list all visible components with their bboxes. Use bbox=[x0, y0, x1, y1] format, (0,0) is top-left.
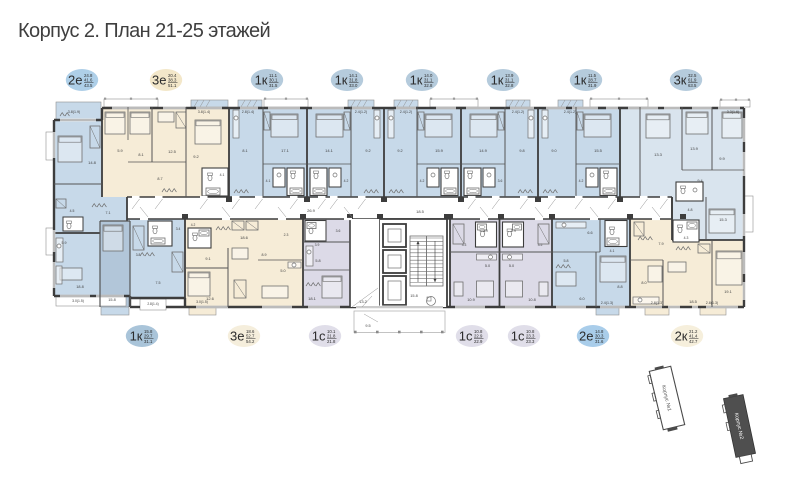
svg-text:63.5: 63.5 bbox=[688, 83, 697, 88]
svg-text:15.5: 15.5 bbox=[594, 148, 603, 153]
svg-text:31.1: 31.1 bbox=[505, 77, 514, 82]
svg-text:52.7: 52.7 bbox=[246, 333, 255, 338]
svg-text:23.3: 23.3 bbox=[526, 333, 535, 338]
svg-text:31.6: 31.6 bbox=[595, 339, 604, 344]
svg-text:4.1: 4.1 bbox=[220, 173, 225, 177]
svg-text:8.1: 8.1 bbox=[138, 153, 143, 157]
svg-text:41.6: 41.6 bbox=[84, 77, 93, 82]
svg-text:9.8: 9.8 bbox=[519, 149, 524, 153]
svg-text:3.6: 3.6 bbox=[336, 229, 341, 233]
svg-text:6.6: 6.6 bbox=[587, 231, 592, 235]
svg-text:2.9: 2.9 bbox=[483, 229, 488, 233]
svg-text:9.2: 9.2 bbox=[193, 154, 199, 159]
svg-text:4.2: 4.2 bbox=[191, 223, 196, 227]
svg-text:3.9: 3.9 bbox=[315, 243, 320, 247]
svg-text:18.5: 18.5 bbox=[689, 299, 698, 304]
svg-text:5.0: 5.0 bbox=[509, 264, 514, 268]
svg-text:5.8: 5.8 bbox=[315, 259, 320, 263]
svg-text:30.3: 30.3 bbox=[595, 333, 604, 338]
svg-text:19.1: 19.1 bbox=[724, 290, 731, 294]
svg-text:61.9: 61.9 bbox=[688, 77, 697, 82]
svg-text:3.8(1.9): 3.8(1.9) bbox=[68, 110, 80, 114]
svg-text:9.2: 9.2 bbox=[365, 149, 370, 153]
svg-text:1к: 1к bbox=[255, 73, 268, 88]
svg-text:21.8: 21.8 bbox=[327, 339, 336, 344]
svg-text:14.9: 14.9 bbox=[479, 148, 488, 153]
svg-text:51.1: 51.1 bbox=[168, 83, 177, 88]
svg-text:8.1: 8.1 bbox=[242, 149, 247, 153]
svg-text:21.8: 21.8 bbox=[327, 333, 336, 338]
svg-text:3.3(1.6): 3.3(1.6) bbox=[727, 110, 739, 114]
svg-text:15.3: 15.3 bbox=[719, 218, 726, 222]
svg-text:2.4(1.3): 2.4(1.3) bbox=[601, 301, 613, 305]
svg-text:1к: 1к bbox=[574, 73, 587, 88]
svg-text:15.8: 15.8 bbox=[108, 298, 115, 302]
svg-text:5.8: 5.8 bbox=[564, 259, 569, 263]
svg-text:22.9: 22.9 bbox=[474, 333, 483, 338]
svg-text:9.2: 9.2 bbox=[397, 149, 402, 153]
svg-text:2.4(1.2): 2.4(1.2) bbox=[355, 110, 367, 114]
svg-text:3е: 3е bbox=[152, 73, 166, 88]
svg-text:3.8(1.4): 3.8(1.4) bbox=[198, 110, 210, 114]
svg-text:5.0: 5.0 bbox=[485, 264, 490, 268]
svg-text:5.0: 5.0 bbox=[280, 269, 285, 273]
svg-text:1с: 1с bbox=[511, 329, 525, 344]
svg-text:4.1: 4.1 bbox=[610, 249, 615, 253]
svg-text:14.8: 14.8 bbox=[88, 160, 97, 165]
svg-text:32.8: 32.8 bbox=[424, 83, 433, 88]
svg-text:2к: 2к bbox=[675, 329, 688, 344]
svg-text:2.4(1.2): 2.4(1.2) bbox=[512, 110, 524, 114]
svg-text:5.9: 5.9 bbox=[62, 241, 67, 245]
svg-text:13.9: 13.9 bbox=[690, 146, 699, 151]
svg-text:31.5: 31.5 bbox=[269, 83, 278, 88]
svg-text:2.9: 2.9 bbox=[511, 229, 516, 233]
svg-text:18.1: 18.1 bbox=[308, 296, 317, 301]
svg-text:5.9: 5.9 bbox=[117, 149, 122, 153]
svg-text:2е: 2е bbox=[68, 73, 82, 88]
svg-text:3.8: 3.8 bbox=[136, 253, 141, 257]
svg-text:26.9: 26.9 bbox=[307, 208, 316, 213]
svg-text:15.8: 15.8 bbox=[410, 294, 417, 298]
svg-text:43.5: 43.5 bbox=[84, 83, 93, 88]
svg-text:2е: 2е bbox=[579, 329, 593, 344]
svg-text:6.0: 6.0 bbox=[579, 297, 584, 301]
svg-text:14.1: 14.1 bbox=[325, 148, 334, 153]
svg-text:22.9: 22.9 bbox=[474, 339, 483, 344]
svg-text:2.8(1.3): 2.8(1.3) bbox=[706, 301, 718, 305]
svg-text:3.0(1.5): 3.0(1.5) bbox=[196, 300, 208, 304]
svg-text:1к: 1к bbox=[410, 73, 423, 88]
svg-text:18.6: 18.6 bbox=[240, 235, 249, 240]
svg-text:7.1: 7.1 bbox=[106, 211, 111, 215]
svg-text:9.5: 9.5 bbox=[365, 324, 370, 328]
svg-text:1к: 1к bbox=[130, 329, 143, 344]
svg-text:10.9: 10.9 bbox=[467, 298, 474, 302]
svg-text:8.9: 8.9 bbox=[262, 253, 267, 257]
svg-text:18.8: 18.8 bbox=[76, 285, 83, 289]
svg-text:3.4: 3.4 bbox=[176, 227, 181, 231]
svg-text:3к: 3к bbox=[674, 73, 687, 88]
svg-text:9.1: 9.1 bbox=[205, 257, 210, 261]
svg-text:38.3: 38.3 bbox=[168, 77, 177, 82]
svg-text:1с: 1с bbox=[312, 329, 326, 344]
svg-text:31.9: 31.9 bbox=[588, 83, 597, 88]
svg-text:2.8(1.4): 2.8(1.4) bbox=[147, 302, 158, 306]
svg-text:4.8: 4.8 bbox=[688, 208, 693, 212]
svg-text:30.1: 30.1 bbox=[269, 77, 278, 82]
svg-text:4.5: 4.5 bbox=[70, 209, 75, 213]
svg-text:15.9: 15.9 bbox=[435, 148, 444, 153]
svg-text:2.8(1.4): 2.8(1.4) bbox=[242, 110, 254, 114]
svg-text:10.8: 10.8 bbox=[528, 298, 535, 302]
svg-text:Корпус 2. План 21-25 этажей: Корпус 2. План 21-25 этажей bbox=[18, 20, 270, 42]
svg-text:4.2: 4.2 bbox=[420, 179, 425, 183]
svg-text:41.4: 41.4 bbox=[689, 333, 698, 338]
svg-text:2.8(1.3): 2.8(1.3) bbox=[651, 301, 663, 305]
svg-text:28.7: 28.7 bbox=[588, 77, 597, 82]
svg-text:1с: 1с bbox=[459, 329, 473, 344]
svg-text:42.7: 42.7 bbox=[689, 339, 698, 344]
svg-text:17.1: 17.1 bbox=[281, 148, 290, 153]
svg-text:4.3: 4.3 bbox=[684, 236, 689, 240]
svg-text:2.4(1.2): 2.4(1.2) bbox=[564, 110, 576, 114]
svg-text:12.5: 12.5 bbox=[168, 149, 177, 154]
svg-text:9.9: 9.9 bbox=[719, 156, 725, 161]
svg-text:4.2: 4.2 bbox=[579, 179, 584, 183]
svg-text:4.2: 4.2 bbox=[344, 179, 349, 183]
svg-text:23.3: 23.3 bbox=[526, 339, 535, 344]
svg-text:32.8: 32.8 bbox=[505, 83, 514, 88]
svg-text:3.6: 3.6 bbox=[498, 179, 503, 183]
svg-text:1к: 1к bbox=[335, 73, 348, 88]
svg-text:18.5: 18.5 bbox=[416, 209, 425, 214]
svg-text:8.7: 8.7 bbox=[157, 177, 162, 181]
svg-text:8.0: 8.0 bbox=[641, 281, 646, 285]
svg-text:7.9: 7.9 bbox=[658, 242, 663, 246]
svg-text:3е: 3е bbox=[230, 329, 244, 344]
svg-text:13.3: 13.3 bbox=[654, 152, 663, 157]
svg-text:31.1: 31.1 bbox=[424, 77, 433, 82]
svg-text:33.0: 33.0 bbox=[349, 83, 358, 88]
svg-text:31.8: 31.8 bbox=[349, 77, 358, 82]
svg-text:2.4(1.2): 2.4(1.2) bbox=[400, 110, 412, 114]
svg-text:31.1: 31.1 bbox=[144, 339, 153, 344]
svg-text:7.5: 7.5 bbox=[156, 281, 161, 285]
svg-text:54.2: 54.2 bbox=[246, 339, 255, 344]
svg-text:3.0(1.5): 3.0(1.5) bbox=[72, 299, 84, 303]
svg-text:1к: 1к bbox=[491, 73, 504, 88]
svg-text:13.2: 13.2 bbox=[359, 299, 368, 304]
svg-text:29.7: 29.7 bbox=[144, 333, 153, 338]
svg-text:9.0: 9.0 bbox=[551, 149, 556, 153]
svg-text:2.3: 2.3 bbox=[284, 233, 289, 237]
svg-text:8.8: 8.8 bbox=[617, 285, 622, 289]
svg-text:4.1: 4.1 bbox=[266, 179, 271, 183]
